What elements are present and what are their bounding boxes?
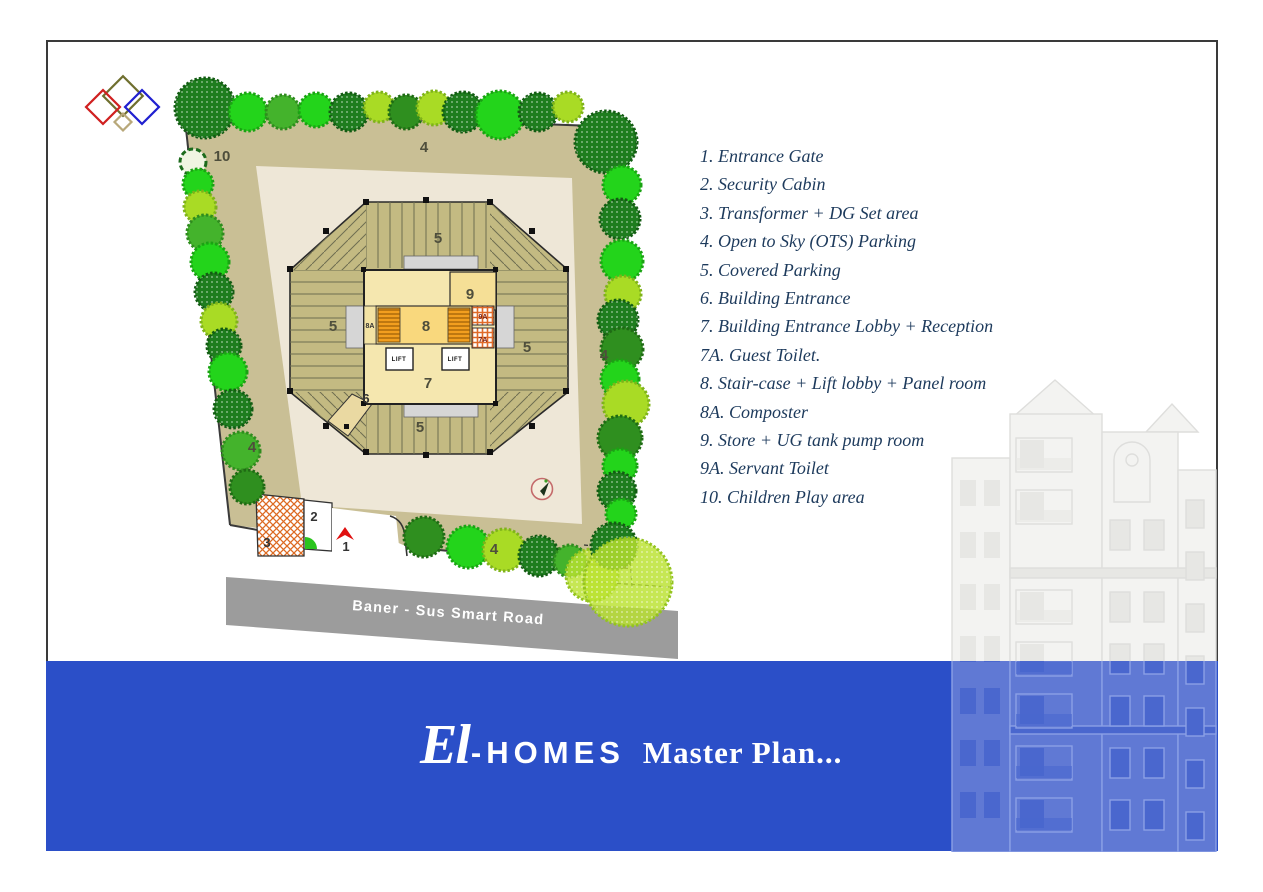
banner-title: El -HOMES Master Plan... [420,661,842,851]
legend-item: 1. Entrance Gate [700,142,1030,170]
legend-item: 7A. Guest Toilet. [700,341,1030,369]
legend-item: 3. Transformer + DG Set area [700,199,1030,227]
brochure-page: Baner - Sus Smart Road [0,0,1263,892]
legend-item: 9A. Servant Toilet [700,454,1030,482]
legend-item: 2. Security Cabin [700,170,1030,198]
legend-item: 9. Store + UG tank pump room [700,426,1030,454]
legend-item: 4. Open to Sky (OTS) Parking [700,227,1030,255]
legend-item: 10. Children Play area [700,483,1030,511]
legend-item: 8A. Composter [700,398,1030,426]
legend-item: 8. Stair-case + Lift lobby + Panel room [700,369,1030,397]
legend-item: 7. Building Entrance Lobby + Reception [700,312,1030,340]
legend-item: 5. Covered Parking [700,256,1030,284]
legend: 1. Entrance Gate 2. Security Cabin 3. Tr… [700,142,1030,511]
legend-list: 1. Entrance Gate 2. Security Cabin 3. Tr… [700,142,1030,511]
legend-item: 6. Building Entrance [700,284,1030,312]
